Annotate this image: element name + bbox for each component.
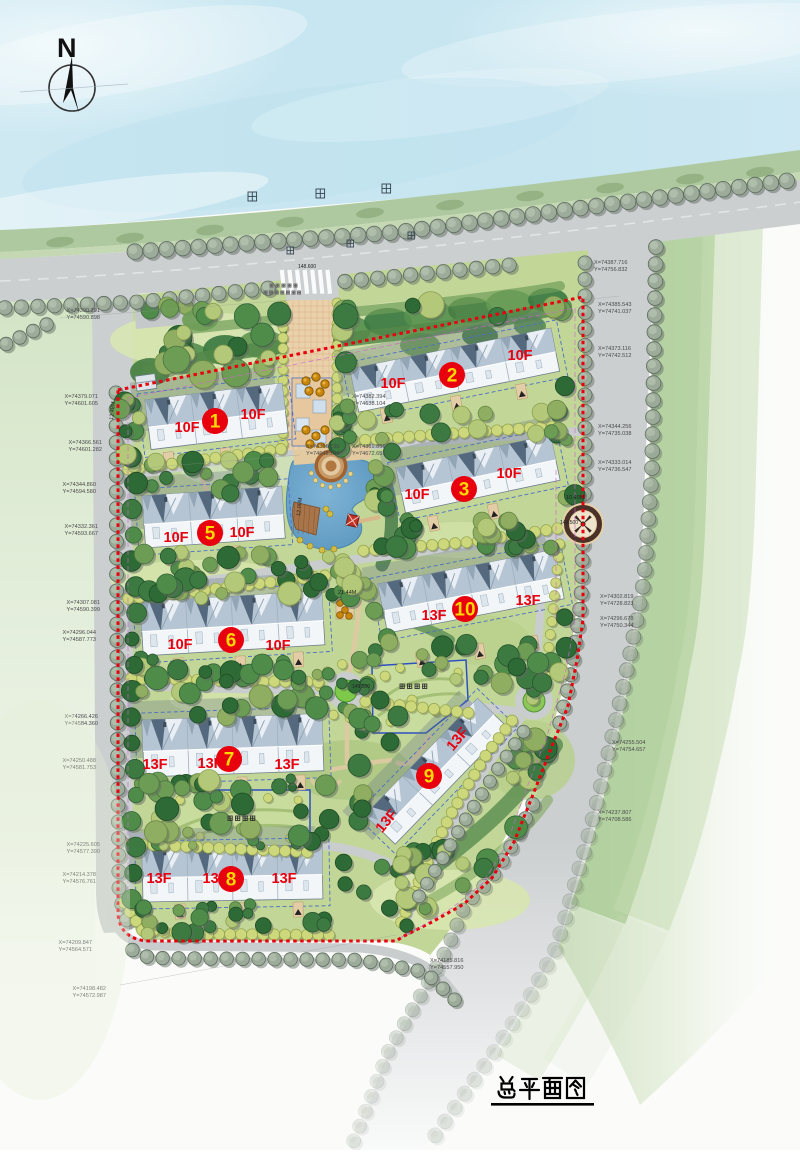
svg-text:Y=74590.399: Y=74590.399 xyxy=(67,607,100,613)
svg-text:N: N xyxy=(57,33,77,63)
svg-text:Y=74648.232: Y=74648.232 xyxy=(306,451,339,457)
svg-text:148.600: 148.600 xyxy=(298,264,316,270)
svg-text:13F: 13F xyxy=(516,593,541,609)
svg-text:Y=74601.605: Y=74601.605 xyxy=(65,401,98,407)
svg-text:Y=74750.344: Y=74750.344 xyxy=(600,623,633,629)
svg-text:Y=74754.657: Y=74754.657 xyxy=(612,747,645,753)
svg-text:1: 1 xyxy=(210,412,221,433)
svg-text:2: 2 xyxy=(447,366,458,387)
svg-text:13F: 13F xyxy=(422,608,447,624)
svg-text:13F: 13F xyxy=(275,757,300,773)
svg-text:X=74385.543: X=74385.543 xyxy=(598,302,631,308)
svg-text:X=74379.071: X=74379.071 xyxy=(65,394,98,400)
svg-text:X=74344.256: X=74344.256 xyxy=(598,424,631,430)
svg-text:X=74185.816: X=74185.816 xyxy=(430,958,463,964)
svg-text:3: 3 xyxy=(459,480,470,501)
svg-text:21.44M: 21.44M xyxy=(338,590,357,596)
svg-text:10F: 10F xyxy=(508,348,533,364)
svg-text:10F: 10F xyxy=(381,376,406,392)
svg-text:X=74255.504: X=74255.504 xyxy=(612,740,645,746)
svg-text:X=74296.044: X=74296.044 xyxy=(63,630,96,636)
svg-text:13F: 13F xyxy=(143,757,168,773)
svg-text:5: 5 xyxy=(205,524,216,545)
svg-text:Y=74735.038: Y=74735.038 xyxy=(598,431,631,437)
svg-text:10F: 10F xyxy=(405,487,430,503)
svg-text:X=74332.361: X=74332.361 xyxy=(65,524,98,530)
svg-text:Y=74593.667: Y=74593.667 xyxy=(65,531,98,537)
svg-text:Y=74601.282: Y=74601.282 xyxy=(69,447,102,453)
svg-text:X=74373.116: X=74373.116 xyxy=(598,346,631,352)
svg-text:10F: 10F xyxy=(168,637,193,653)
svg-text:6: 6 xyxy=(226,631,237,652)
svg-text:10.49M: 10.49M xyxy=(566,495,585,501)
svg-text:Y=74756.832: Y=74756.832 xyxy=(594,267,627,273)
svg-text:Y=74736.547: Y=74736.547 xyxy=(598,467,631,473)
svg-text:X=74366.730: X=74366.730 xyxy=(306,444,339,450)
svg-text:9: 9 xyxy=(424,767,435,788)
svg-text:10F: 10F xyxy=(266,638,291,654)
svg-text:149.500: 149.500 xyxy=(560,520,578,526)
svg-text:10F: 10F xyxy=(230,525,255,541)
svg-text:149.500: 149.500 xyxy=(352,684,370,690)
svg-text:13F: 13F xyxy=(147,871,172,887)
svg-text:X=74307.081: X=74307.081 xyxy=(67,600,100,606)
svg-text:8: 8 xyxy=(226,870,237,891)
svg-text:7: 7 xyxy=(224,750,235,771)
svg-text:X=74366.561: X=74366.561 xyxy=(69,440,102,446)
svg-text:X=74382.394: X=74382.394 xyxy=(352,394,385,400)
svg-text:X=74333.014: X=74333.014 xyxy=(598,460,631,466)
svg-text:10F: 10F xyxy=(164,530,189,546)
svg-text:X=74344.860: X=74344.860 xyxy=(63,482,96,488)
svg-text:X=74369.866: X=74369.866 xyxy=(352,444,385,450)
svg-text:X=74237.807: X=74237.807 xyxy=(598,810,631,816)
svg-text:Y=74728.823: Y=74728.823 xyxy=(600,601,633,607)
svg-text:Y=74587.773: Y=74587.773 xyxy=(63,637,96,643)
svg-text:Y=74594.580: Y=74594.580 xyxy=(63,489,96,495)
svg-text:X=74387.716: X=74387.716 xyxy=(594,260,627,266)
svg-text:Y=74557.950: Y=74557.950 xyxy=(430,965,463,971)
svg-text:Y=74590.898: Y=74590.898 xyxy=(67,315,100,321)
svg-text:10: 10 xyxy=(454,600,475,621)
svg-text:Y=74741.037: Y=74741.037 xyxy=(598,309,631,315)
svg-text:X=74296.678: X=74296.678 xyxy=(600,616,633,622)
svg-text:10F: 10F xyxy=(241,407,266,423)
svg-text:X=74302.819: X=74302.819 xyxy=(600,594,633,600)
svg-text:13F: 13F xyxy=(272,871,297,887)
svg-text:X=74390.291: X=74390.291 xyxy=(67,308,100,314)
svg-text:Y=74708.586: Y=74708.586 xyxy=(598,817,631,823)
svg-text:10F: 10F xyxy=(175,420,200,436)
svg-text:10F: 10F xyxy=(497,466,522,482)
svg-text:Y=74742.512: Y=74742.512 xyxy=(598,353,631,359)
svg-text:Y=74672.651: Y=74672.651 xyxy=(352,451,385,457)
svg-text:Y=74638.104: Y=74638.104 xyxy=(352,401,385,407)
